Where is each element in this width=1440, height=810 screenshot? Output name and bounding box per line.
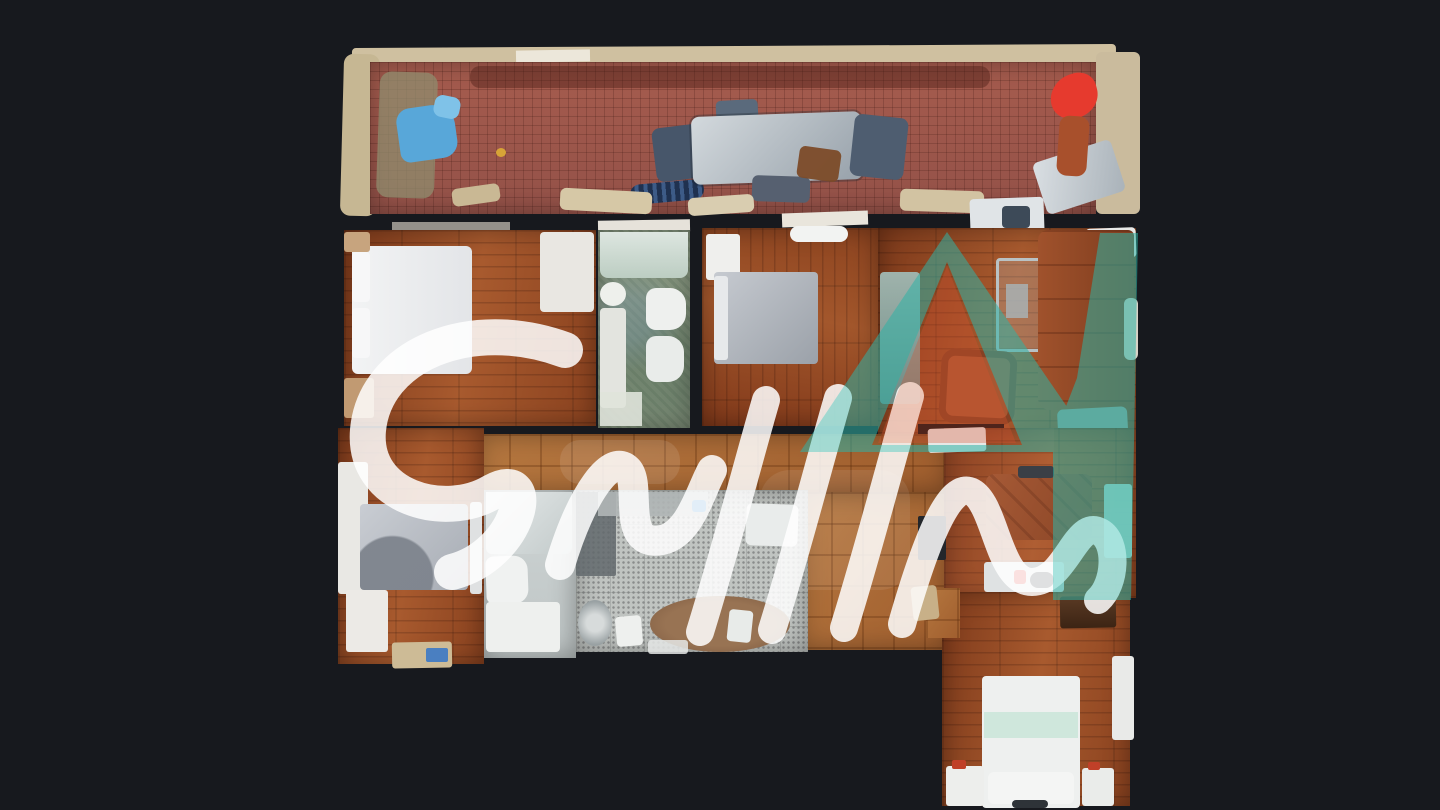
- bathroom-1-mat: [600, 392, 642, 426]
- office-desk-coil: [1030, 572, 1054, 588]
- bedroom-4-bed-handle: [1012, 800, 1048, 808]
- master-nightstand-top: [344, 232, 370, 252]
- kitchen-stool-3: [648, 640, 688, 654]
- kitchen-stool-1: [615, 615, 644, 647]
- office-door-fragment: [928, 427, 987, 453]
- hallway-sheen-1: [560, 440, 680, 484]
- bathroom-1-toilet: [646, 288, 686, 330]
- bedroom-4-dresser: [1060, 596, 1117, 629]
- bathroom-1-bidet: [646, 336, 684, 382]
- bedroom-3-radiator: [470, 502, 482, 594]
- bedroom-2-bed: [714, 272, 818, 364]
- bedroom-2-pillow: [714, 276, 728, 360]
- living-room-console-item: [1006, 284, 1028, 318]
- balcony-chair: [1002, 206, 1030, 228]
- living-room-armchair: [938, 348, 1018, 426]
- bedroom-2-ac-unit: [790, 226, 848, 242]
- kitchen-basin: [578, 600, 612, 646]
- office-teal-cabinet: [1104, 484, 1132, 558]
- office-bed: [986, 474, 1092, 540]
- bedroom-4-red-item-right: [1088, 762, 1100, 770]
- office-desk-red-item: [1014, 570, 1026, 584]
- master-bed-pillow-2: [352, 308, 370, 358]
- terrace-dark-top-band: [470, 66, 990, 88]
- master-bed: [352, 246, 472, 374]
- office-wardrobe-dark: [918, 516, 946, 560]
- bedroom-4-bed-stripe: [984, 712, 1078, 738]
- office-headboard: [1018, 466, 1054, 478]
- kitchen-sink-unit: [745, 503, 798, 547]
- master-sideboard: [540, 232, 594, 312]
- floorplan-3d-dollhouse-view[interactable]: [0, 0, 1440, 810]
- master-nightstand-bottom: [344, 378, 374, 418]
- living-room-tv-cabinet: [880, 272, 920, 404]
- terrace-chair-bottom: [752, 175, 811, 203]
- bedroom-4-nightstand-right: [1082, 768, 1114, 806]
- bedroom-3-desk-item: [426, 648, 448, 662]
- bedroom-4-wardrobe: [1112, 656, 1134, 740]
- bathroom-2-toilet: [485, 555, 529, 604]
- terrace-orange-chair: [1056, 115, 1090, 177]
- bathroom-2-sink: [486, 602, 560, 652]
- master-bed-pillow-1: [352, 252, 370, 302]
- bedroom-4-nightstand-left: [946, 766, 984, 806]
- terrace-wall-top-white: [516, 49, 590, 62]
- bedroom-3-nightstand: [346, 590, 388, 652]
- bathroom-1-shower: [600, 232, 688, 278]
- terrace-yellow-item: [496, 148, 506, 157]
- bathroom-2-shower: [486, 492, 572, 554]
- kitchen-blue-cup: [692, 500, 706, 512]
- living-room-sofa: [1038, 230, 1134, 410]
- terrace-debris-1: [559, 188, 652, 215]
- bathroom-1-sink-round: [600, 282, 626, 306]
- terrace-chair-right: [849, 113, 909, 180]
- living-room-sofa-arm: [1124, 298, 1138, 360]
- bedroom-4-red-item-left: [952, 760, 966, 769]
- bedroom-3-bed: [360, 504, 468, 590]
- wall-fragment-3: [782, 211, 868, 228]
- bedroom-4-stub-wall: [910, 585, 939, 622]
- kitchen-stool-2: [726, 609, 753, 643]
- terrace-chair-brown: [796, 145, 842, 183]
